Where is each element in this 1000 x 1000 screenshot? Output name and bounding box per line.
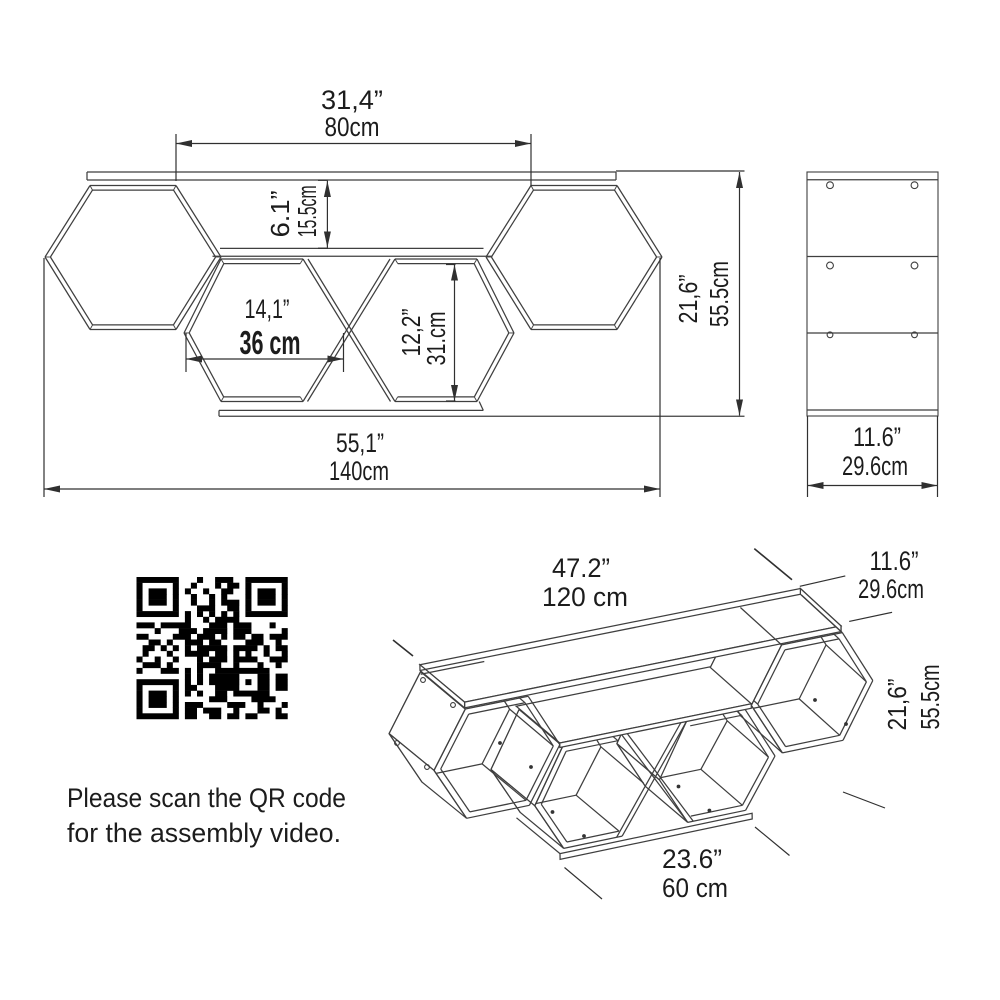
svg-text:12,2”: 12,2” bbox=[398, 309, 426, 357]
svg-text:31,4”: 31,4” bbox=[321, 85, 383, 115]
svg-text:60 cm: 60 cm bbox=[662, 873, 728, 903]
svg-text:for the assembly video.: for the assembly video. bbox=[67, 818, 341, 848]
svg-text:23.6”: 23.6” bbox=[662, 844, 722, 874]
svg-text:29.6cm: 29.6cm bbox=[842, 451, 908, 481]
svg-text:6.1”: 6.1” bbox=[267, 190, 295, 237]
svg-text:15.5cm: 15.5cm bbox=[294, 185, 322, 237]
svg-text:55,1”: 55,1” bbox=[336, 428, 384, 458]
svg-text:36 cm: 36 cm bbox=[240, 324, 301, 361]
svg-text:21,6”: 21,6” bbox=[884, 679, 912, 731]
svg-text:47.2”: 47.2” bbox=[552, 553, 610, 583]
svg-text:55.5cm: 55.5cm bbox=[917, 665, 945, 730]
svg-text:31.cm: 31.cm bbox=[423, 312, 451, 366]
svg-text:11.6”: 11.6” bbox=[853, 422, 901, 452]
svg-text:Please scan the QR code: Please scan the QR code bbox=[67, 783, 346, 813]
svg-text:80cm: 80cm bbox=[325, 112, 380, 142]
svg-text:140cm: 140cm bbox=[329, 456, 389, 486]
svg-text:29.6cm: 29.6cm bbox=[858, 574, 924, 604]
svg-text:55.5cm: 55.5cm bbox=[706, 261, 734, 327]
svg-text:21,6”: 21,6” bbox=[675, 275, 703, 324]
svg-text:120 cm: 120 cm bbox=[542, 582, 628, 612]
svg-text:11.6”: 11.6” bbox=[870, 546, 919, 576]
svg-text:14,1”: 14,1” bbox=[245, 294, 290, 324]
